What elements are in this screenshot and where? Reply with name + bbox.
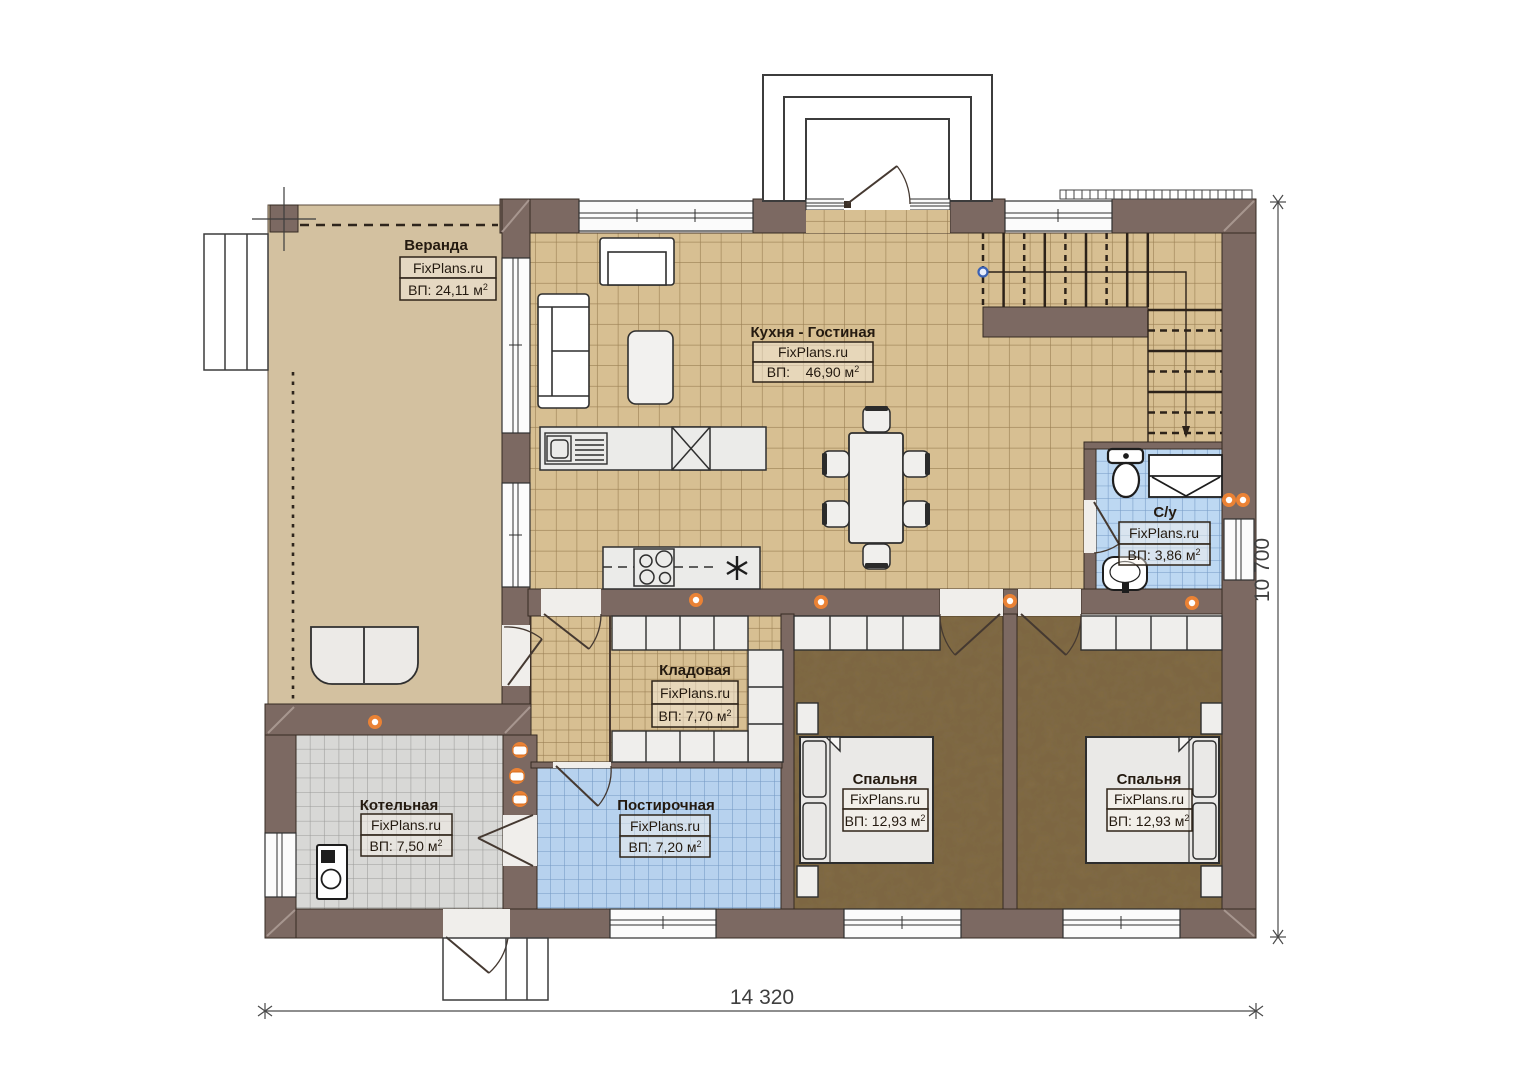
svg-text:14 320: 14 320 bbox=[730, 986, 794, 1009]
svg-text:Спальня: Спальня bbox=[853, 771, 918, 788]
svg-text:ВП: 7,70 м2: ВП: 7,70 м2 bbox=[659, 708, 732, 724]
svg-text:FixPlans.ru: FixPlans.ru bbox=[1129, 525, 1199, 541]
svg-text:ВП: 12,93 м2: ВП: 12,93 м2 bbox=[1109, 813, 1190, 829]
svg-text:ВП: 3,86 м2: ВП: 3,86 м2 bbox=[1128, 547, 1201, 563]
svg-text:Котельная: Котельная bbox=[360, 797, 439, 814]
svg-text:FixPlans.ru: FixPlans.ru bbox=[630, 818, 700, 834]
svg-text:Постирочная: Постирочная bbox=[617, 797, 714, 814]
svg-text:FixPlans.ru: FixPlans.ru bbox=[371, 817, 441, 833]
svg-text:ВП: 46,90 м2: ВП: 46,90 м2 bbox=[767, 364, 859, 380]
svg-text:FixPlans.ru: FixPlans.ru bbox=[1114, 791, 1184, 807]
svg-text:Спальня: Спальня bbox=[1117, 771, 1182, 788]
svg-text:С/у: С/у bbox=[1153, 504, 1177, 521]
svg-text:FixPlans.ru: FixPlans.ru bbox=[850, 791, 920, 807]
svg-text:ВП: 24,11 м2: ВП: 24,11 м2 bbox=[408, 282, 488, 298]
svg-text:Веранда: Веранда bbox=[404, 237, 468, 254]
svg-text:Кладовая: Кладовая bbox=[659, 662, 731, 679]
svg-text:ВП: 7,20 м2: ВП: 7,20 м2 bbox=[629, 839, 702, 855]
svg-text:ВП: 12,93 м2: ВП: 12,93 м2 bbox=[845, 813, 926, 829]
svg-text:FixPlans.ru: FixPlans.ru bbox=[413, 260, 483, 276]
svg-text:10 700: 10 700 bbox=[1251, 538, 1274, 602]
svg-text:ВП: 7,50 м2: ВП: 7,50 м2 bbox=[370, 838, 443, 854]
svg-text:Кухня - Гостиная: Кухня - Гостиная bbox=[751, 324, 876, 341]
svg-text:FixPlans.ru: FixPlans.ru bbox=[778, 344, 848, 360]
svg-text:FixPlans.ru: FixPlans.ru bbox=[660, 685, 730, 701]
